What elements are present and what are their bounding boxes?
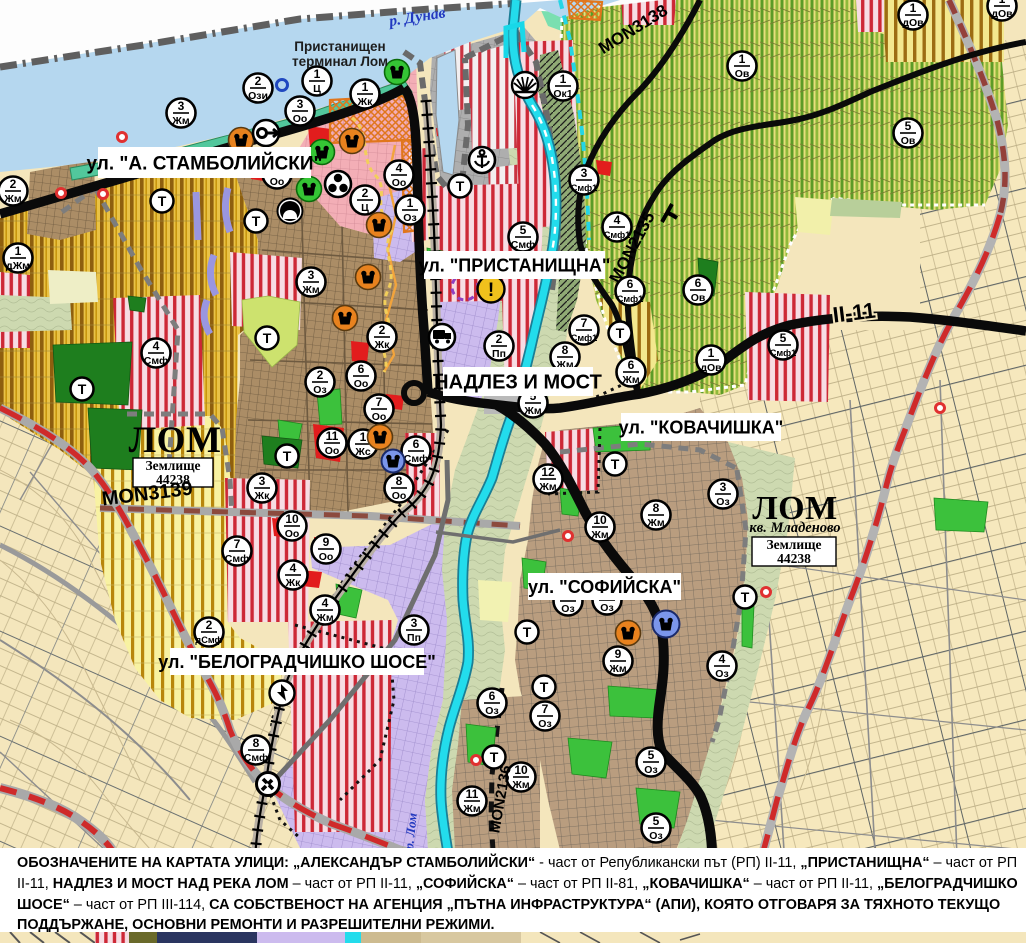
svg-text:1: 1: [360, 430, 367, 444]
svg-text:10: 10: [285, 512, 299, 526]
svg-text:2: 2: [255, 74, 262, 88]
svg-text:2: 2: [496, 332, 503, 346]
svg-text:1: 1: [407, 196, 414, 210]
svg-text:5: 5: [653, 814, 660, 828]
svg-text:Оо: Оо: [293, 113, 308, 125]
svg-text:Оо: Оо: [354, 378, 369, 390]
svg-text:Оз: Оз: [403, 212, 416, 224]
svg-text:дОв: дОв: [700, 362, 722, 374]
svg-text:3: 3: [308, 268, 315, 282]
svg-text:3: 3: [720, 480, 727, 494]
svg-text:ЛОМ: ЛОМ: [129, 420, 222, 461]
svg-text:Ов: Ов: [901, 135, 916, 147]
svg-text:Оз: Оз: [715, 668, 728, 680]
svg-text:Смф1: Смф1: [571, 333, 597, 343]
svg-text:Оз: Оз: [649, 830, 662, 842]
svg-text:Оо: Оо: [319, 551, 334, 563]
svg-text:Жк: Жк: [374, 339, 390, 351]
svg-text:дОв: дОв: [991, 8, 1013, 20]
svg-text:Т: Т: [158, 193, 167, 209]
svg-text:9: 9: [615, 647, 622, 661]
svg-text:Т: Т: [741, 589, 750, 605]
svg-text:дСмф: дСмф: [195, 635, 222, 645]
svg-text:7: 7: [542, 702, 549, 716]
svg-text:Оз: Оз: [561, 603, 574, 615]
svg-text:4: 4: [396, 161, 403, 175]
svg-text:Жм: Жм: [608, 663, 626, 675]
svg-text:3: 3: [259, 474, 266, 488]
svg-text:Ози: Ози: [248, 90, 268, 102]
svg-text:дОв: дОв: [902, 17, 924, 29]
svg-text:Т: Т: [611, 456, 620, 472]
svg-text:11: 11: [326, 429, 339, 443]
svg-text:11: 11: [466, 787, 479, 801]
svg-text:Т: Т: [283, 448, 292, 464]
svg-text:5: 5: [520, 223, 527, 237]
svg-text:6: 6: [489, 689, 496, 703]
svg-text:1: 1: [708, 346, 715, 360]
svg-text:Жм: Жм: [301, 284, 319, 296]
svg-text:Т: Т: [490, 749, 499, 765]
svg-text:Жм: Жм: [171, 115, 189, 127]
svg-text:Смф1: Смф1: [571, 183, 597, 193]
svg-text:Т: Т: [523, 624, 532, 640]
svg-text:5: 5: [648, 748, 655, 762]
svg-text:7: 7: [234, 537, 241, 551]
svg-text:Пп: Пп: [492, 348, 506, 360]
svg-text:терминал Лом: терминал Лом: [292, 54, 388, 69]
svg-text:Т: Т: [456, 178, 465, 194]
svg-text:Т: Т: [78, 381, 87, 397]
svg-text:10: 10: [514, 763, 528, 777]
svg-text:кв. Младеново: кв. Младеново: [749, 520, 840, 536]
svg-text:дЖм: дЖм: [6, 260, 30, 272]
svg-text:Ц: Ц: [361, 202, 369, 214]
svg-text:НАДЛЕЗ И МОСТ: НАДЛЕЗ И МОСТ: [434, 372, 602, 394]
svg-text:8: 8: [253, 736, 260, 750]
svg-text:Землище: Землище: [766, 537, 821, 552]
svg-text:2: 2: [317, 368, 324, 382]
svg-text:Оз: Оз: [313, 384, 326, 396]
svg-text:4: 4: [290, 561, 297, 575]
svg-text:1: 1: [560, 72, 567, 86]
svg-text:Оо: Оо: [325, 445, 340, 457]
svg-text:Оз: Оз: [538, 718, 551, 730]
svg-text:4: 4: [153, 339, 160, 353]
svg-text:12: 12: [541, 465, 555, 479]
svg-text:Смф: Смф: [404, 453, 428, 465]
svg-text:Жм: Жм: [462, 803, 480, 815]
svg-text:6: 6: [695, 276, 702, 290]
svg-text:Смф1: Смф1: [770, 348, 796, 358]
svg-text:Ц: Ц: [313, 83, 321, 95]
svg-text:Ов: Ов: [691, 292, 706, 304]
svg-text:!: !: [488, 280, 494, 301]
svg-text:Жм: Жм: [511, 779, 529, 791]
svg-text:ул. "СОФИЙСКА": ул. "СОФИЙСКА": [528, 576, 681, 597]
svg-text:Смф: Смф: [225, 553, 249, 565]
svg-text:3: 3: [178, 99, 185, 113]
svg-text:Пп: Пп: [407, 632, 421, 644]
svg-text:6: 6: [628, 358, 635, 372]
svg-text:3: 3: [581, 166, 588, 180]
svg-text:Т: Т: [263, 330, 272, 346]
svg-text:8: 8: [653, 501, 660, 515]
svg-text:8: 8: [396, 474, 403, 488]
svg-text:1: 1: [910, 1, 917, 15]
svg-text:ул. "ПРИСТАНИЩНА": ул. "ПРИСТАНИЩНА": [419, 255, 611, 275]
svg-text:II-11: II-11: [831, 298, 877, 328]
svg-text:Жк: Жк: [285, 577, 301, 589]
svg-text:44238: 44238: [777, 551, 811, 566]
svg-text:ул. "БЕЛОГРАДЧИШКО ШОСЕ": ул. "БЕЛОГРАДЧИШКО ШОСЕ": [158, 652, 436, 672]
svg-text:Жм: Жм: [3, 193, 21, 205]
svg-text:Жм: Жм: [646, 517, 664, 529]
svg-text:2: 2: [10, 177, 17, 191]
svg-text:4: 4: [322, 596, 329, 610]
svg-text:Оз: Оз: [600, 602, 613, 614]
svg-text:1: 1: [15, 244, 22, 258]
svg-text:8: 8: [562, 343, 569, 357]
svg-text:Т: Т: [540, 679, 549, 695]
svg-text:Оо: Оо: [392, 177, 407, 189]
svg-text:3: 3: [411, 616, 418, 630]
svg-text:4: 4: [719, 652, 726, 666]
svg-text:Оо: Оо: [372, 411, 387, 423]
svg-text:2: 2: [379, 323, 386, 337]
svg-text:Ок1: Ок1: [553, 88, 572, 100]
svg-text:Оз: Оз: [485, 705, 498, 717]
svg-text:Жм: Жм: [315, 612, 333, 624]
svg-text:Жм: Жм: [590, 529, 608, 541]
svg-text:1: 1: [739, 52, 746, 66]
svg-text:3: 3: [297, 97, 304, 111]
svg-text:Смф: Смф: [144, 355, 168, 367]
svg-text:9: 9: [323, 535, 330, 549]
svg-text:Оо: Оо: [392, 490, 407, 502]
svg-text:Ов: Ов: [735, 68, 750, 80]
svg-text:7: 7: [376, 395, 383, 409]
svg-text:Жм: Жм: [538, 481, 556, 493]
svg-text:6: 6: [627, 277, 634, 291]
svg-text:6: 6: [358, 362, 365, 376]
svg-text:Смф1: Смф1: [617, 294, 643, 304]
svg-text:2: 2: [206, 618, 213, 632]
svg-text:Жм: Жм: [621, 374, 639, 386]
svg-text:Оз: Оз: [644, 764, 657, 776]
svg-text:4: 4: [614, 213, 621, 227]
svg-text:ул. "А. СТАМБОЛИЙСКИ": ул. "А. СТАМБОЛИЙСКИ": [86, 152, 322, 174]
svg-text:Оз: Оз: [716, 496, 729, 508]
svg-text:Пристанищен: Пристанищен: [294, 39, 385, 54]
svg-text:Землище: Землище: [145, 458, 200, 473]
svg-text:Т: Т: [252, 213, 261, 229]
svg-text:Оо: Оо: [285, 528, 300, 540]
svg-text:2: 2: [362, 186, 369, 200]
svg-text:5: 5: [905, 119, 912, 133]
svg-text:Жс: Жс: [354, 446, 370, 458]
svg-text:Жм: Жм: [523, 405, 541, 417]
svg-text:Смф: Смф: [244, 752, 268, 764]
svg-text:10: 10: [593, 513, 607, 527]
svg-text:1: 1: [314, 67, 321, 81]
svg-text:Смф: Смф: [511, 239, 535, 251]
svg-text:6: 6: [413, 437, 420, 451]
svg-text:1: 1: [999, 0, 1006, 6]
svg-text:7: 7: [581, 316, 588, 330]
svg-text:Жк: Жк: [357, 96, 373, 108]
svg-text:1: 1: [362, 80, 369, 94]
svg-text:5: 5: [780, 331, 787, 345]
svg-text:ул. "КОВАЧИШКА": ул. "КОВАЧИШКА": [619, 417, 784, 437]
svg-text:Жк: Жк: [254, 490, 270, 502]
svg-text:Т: Т: [616, 325, 625, 341]
